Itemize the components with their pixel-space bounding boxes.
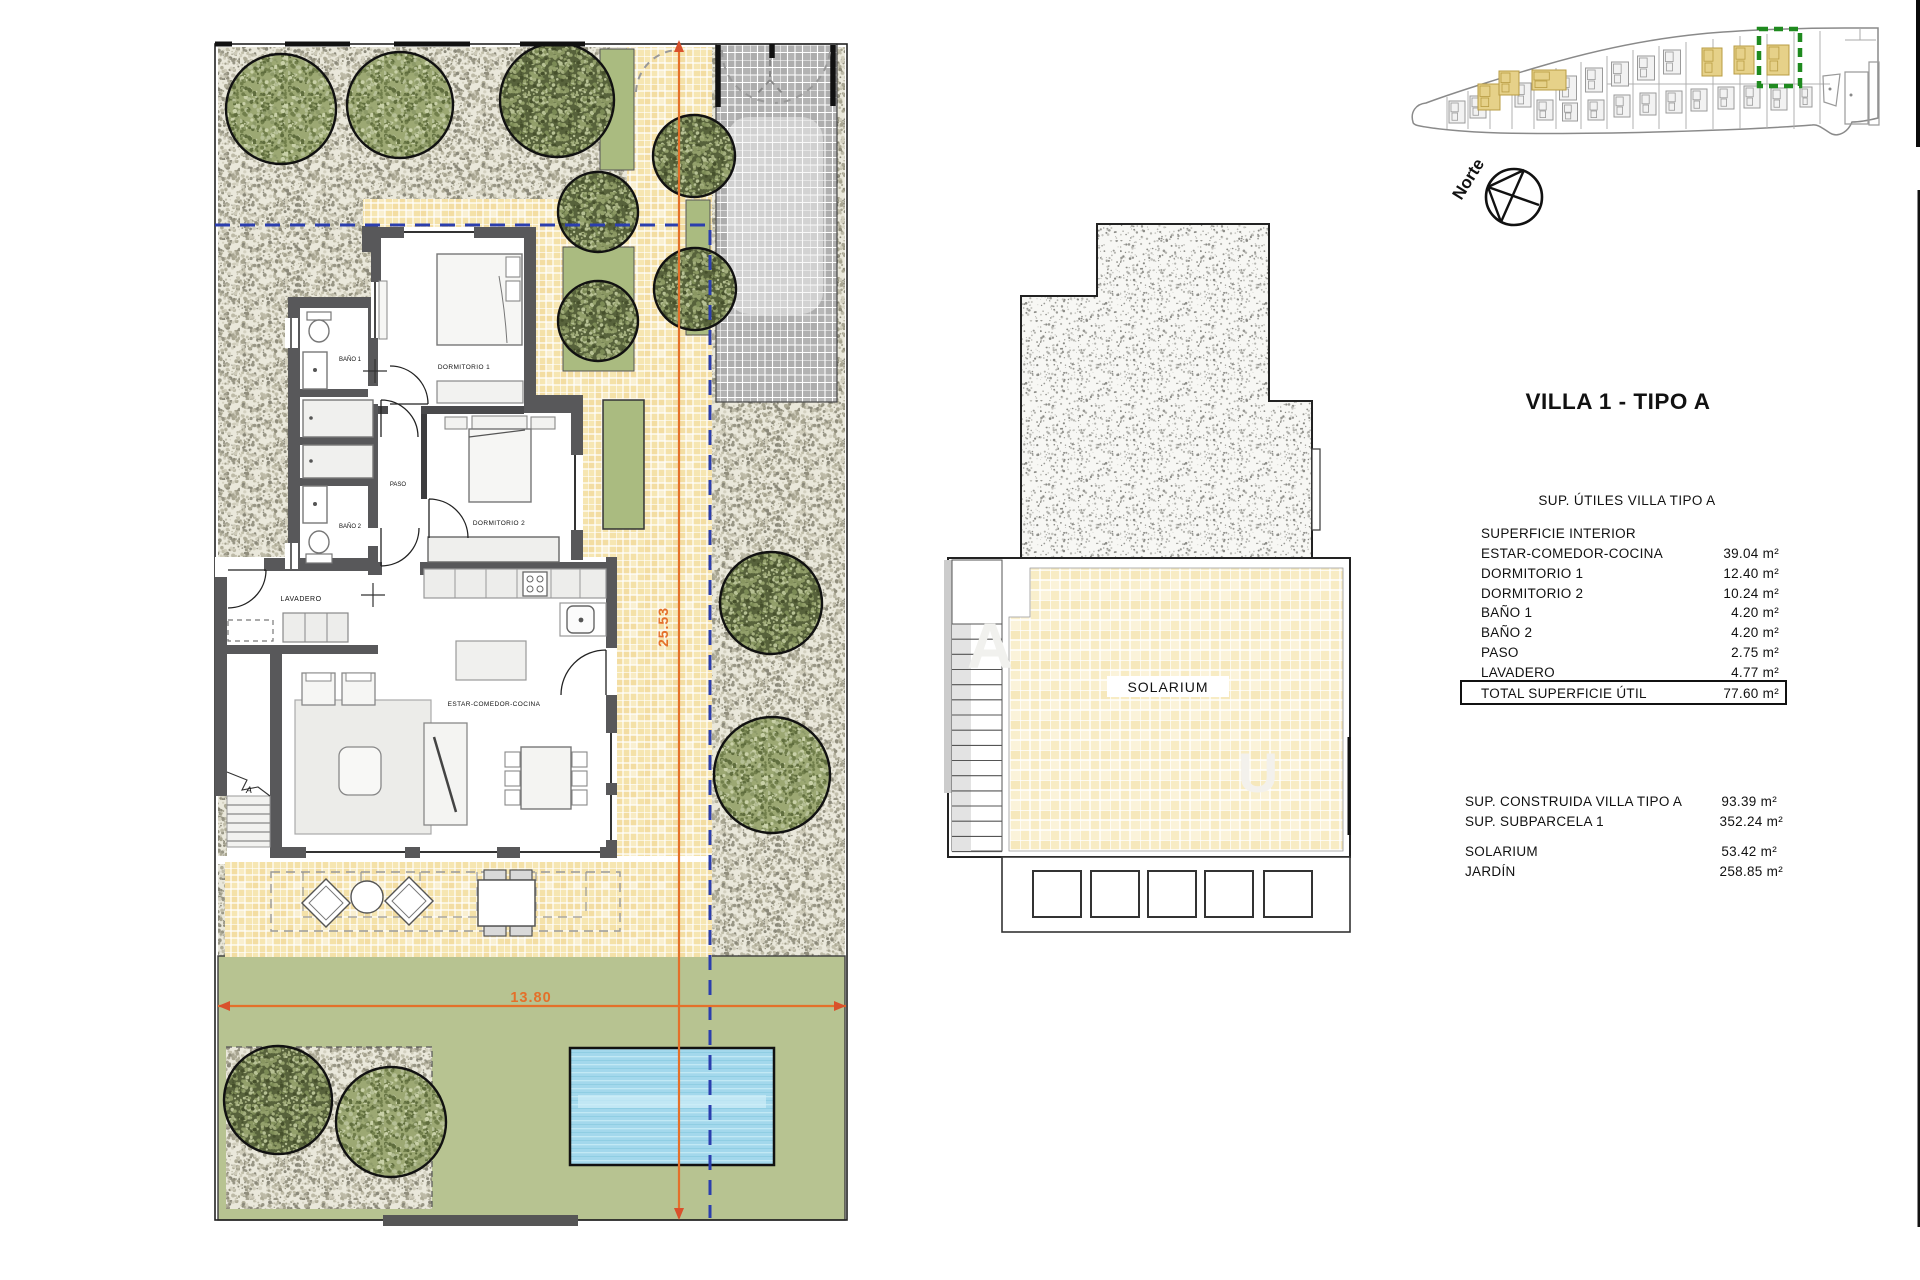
svg-text:2.75 m²: 2.75 m²: [1731, 645, 1779, 660]
svg-text:258.85 m²: 258.85 m²: [1720, 864, 1784, 879]
svg-text:SUP. CONSTRUIDA VILLA TIPO A: SUP. CONSTRUIDA VILLA TIPO A: [1465, 794, 1682, 809]
svg-text:VILLA 1 - TIPO A: VILLA 1 - TIPO A: [1525, 389, 1710, 414]
svg-text:PASO: PASO: [1481, 645, 1519, 660]
svg-text:SUPERFICIE INTERIOR: SUPERFICIE INTERIOR: [1481, 526, 1636, 541]
svg-text:BAÑO 2: BAÑO 2: [1481, 625, 1532, 640]
svg-text:DORMITORIO 1: DORMITORIO 1: [438, 364, 490, 371]
svg-text:A: A: [245, 785, 252, 795]
svg-text:ESTAR-COMEDOR-COCINA: ESTAR-COMEDOR-COCINA: [448, 701, 541, 708]
svg-text:DORMITORIO 2: DORMITORIO 2: [473, 520, 525, 527]
svg-text:10.24 m²: 10.24 m²: [1723, 586, 1779, 601]
svg-text:39.04 m²: 39.04 m²: [1723, 546, 1779, 561]
svg-text:BAÑO 2: BAÑO 2: [339, 523, 362, 530]
svg-text:DORMITORIO 1: DORMITORIO 1: [1481, 566, 1583, 581]
svg-text:PASO: PASO: [390, 482, 407, 488]
svg-text:TOTAL SUPERFICIE ÚTIL: TOTAL SUPERFICIE ÚTIL: [1481, 686, 1647, 701]
svg-text:SUP. SUBPARCELA 1: SUP. SUBPARCELA 1: [1465, 814, 1604, 829]
svg-text:JARDÍN: JARDÍN: [1465, 864, 1516, 879]
svg-text:ESTAR-COMEDOR-COCINA: ESTAR-COMEDOR-COCINA: [1481, 546, 1663, 561]
svg-text:A: A: [967, 610, 1013, 682]
svg-text:4.20 m²: 4.20 m²: [1731, 605, 1779, 620]
svg-text:25.53: 25.53: [655, 607, 671, 647]
svg-text:LAVADERO: LAVADERO: [1481, 665, 1555, 680]
svg-text:BAÑO 1: BAÑO 1: [1481, 605, 1532, 620]
svg-text:352.24 m²: 352.24 m²: [1720, 814, 1784, 829]
svg-text:SUP. ÚTILES VILLA TIPO A: SUP. ÚTILES VILLA TIPO A: [1538, 493, 1715, 508]
svg-text:77.60 m²: 77.60 m²: [1723, 686, 1779, 701]
svg-text:SOLARIUM: SOLARIUM: [1465, 844, 1538, 859]
svg-text:DORMITORIO 2: DORMITORIO 2: [1481, 586, 1583, 601]
svg-text:Norte: Norte: [1449, 155, 1489, 203]
svg-text:4.20 m²: 4.20 m²: [1731, 625, 1779, 640]
svg-text:53.42 m²: 53.42 m²: [1721, 844, 1777, 859]
svg-text:12.40 m²: 12.40 m²: [1723, 566, 1779, 581]
svg-text:LAVADERO: LAVADERO: [280, 596, 321, 603]
svg-text:U: U: [1238, 741, 1278, 804]
svg-text:BAÑO 1: BAÑO 1: [339, 356, 362, 363]
svg-text:13.80: 13.80: [510, 990, 551, 1006]
svg-text:SOLARIUM: SOLARIUM: [1127, 679, 1208, 695]
svg-text:4.77 m²: 4.77 m²: [1731, 665, 1779, 680]
svg-text:93.39 m²: 93.39 m²: [1721, 794, 1777, 809]
